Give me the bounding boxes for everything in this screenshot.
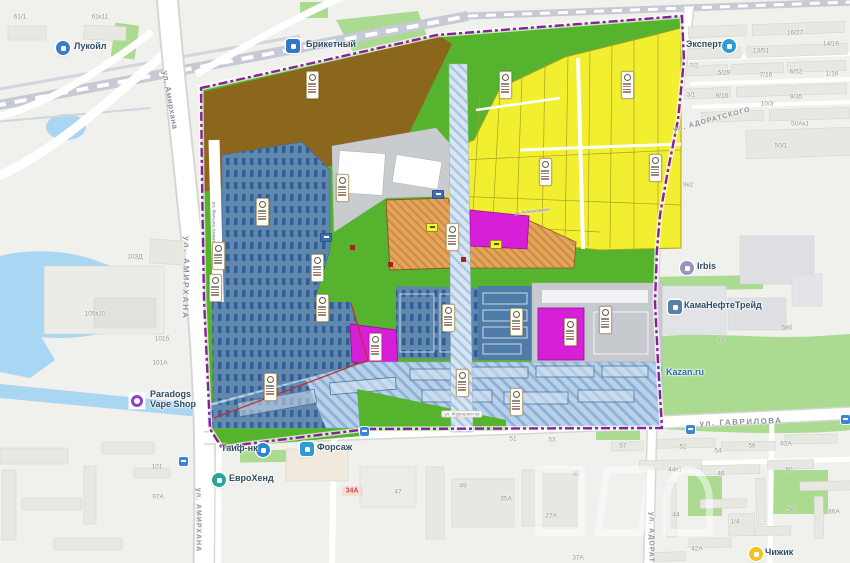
house-number: 57 (619, 443, 626, 450)
zone-info-marker (499, 71, 512, 99)
house-number: 9к2 (683, 182, 693, 189)
vape-shop-icon[interactable] (130, 394, 144, 408)
boundary-point-marker (461, 257, 466, 262)
zone-info-marker (336, 174, 349, 202)
house-number: 10/3 (761, 101, 774, 108)
house-number: 58б (782, 325, 793, 332)
transit-stop-icon[interactable] (686, 425, 695, 434)
poi-label-briketny[interactable]: Брикетный (306, 40, 356, 50)
house-number: 37А (572, 555, 584, 562)
poi-label-kamaneftetreyd[interactable]: КамаНефтеТрейд (684, 301, 762, 311)
zone-info-marker (649, 154, 662, 182)
shop-icon[interactable] (212, 473, 226, 487)
street-label: ул. АМИРХАНА (195, 488, 202, 552)
house-number: 50Ак1 (791, 121, 809, 128)
railway-station-icon[interactable] (286, 39, 300, 53)
poi-label-kazanru[interactable]: Kazan.ru (666, 368, 704, 378)
poi-label-evrohend[interactable]: ЕвроХенд (229, 474, 274, 484)
zone-info-marker (256, 198, 269, 226)
zone-info-marker (316, 294, 329, 322)
poi-label-irbis[interactable]: Irbis (697, 262, 716, 272)
zone-info-marker (442, 304, 455, 332)
poi-label-lukoil[interactable]: Лукойл (74, 42, 106, 52)
zone-info-marker (212, 242, 225, 270)
street-label: ул. Журналистов (441, 411, 482, 418)
zone-info-marker (539, 158, 552, 186)
zone-info-marker (599, 306, 612, 334)
boundary-point-marker (388, 262, 393, 267)
house-number: 9/35 (790, 94, 803, 101)
house-number: 42А (691, 546, 703, 553)
house-number: 101А (152, 360, 167, 367)
boundary-point-marker (350, 245, 355, 250)
poi-label-forsazh[interactable]: Форсаж (317, 443, 352, 453)
zone-code-badge (426, 223, 438, 232)
house-number: 54 (714, 448, 721, 455)
zone-info-marker (621, 71, 634, 99)
zone-info-marker (446, 223, 459, 251)
zone-code-badge (490, 240, 502, 249)
fuel-station-icon[interactable] (256, 443, 270, 457)
house-number: 13/51 (753, 48, 769, 55)
house-number: 76 (717, 338, 724, 345)
zone-code-badge (320, 233, 332, 242)
map-canvas[interactable]: ЛукойлБрикетныйЭкспертIrbisКамаНефтеТрей… (0, 0, 850, 563)
poi-label-paradogs[interactable]: Paradogs Vape Shop (150, 390, 196, 410)
house-number: 101б (155, 336, 170, 343)
house-number: 52 (679, 444, 686, 451)
house-number: 101 (152, 464, 163, 471)
transit-stop-icon[interactable] (179, 457, 188, 466)
transit-stop-icon[interactable] (360, 427, 369, 436)
house-number: 51 (509, 436, 516, 443)
house-number: 61/1 (14, 14, 27, 21)
house-number: 7/2 (689, 63, 698, 70)
fuel-station-icon[interactable] (56, 41, 70, 55)
house-number: 66А (828, 509, 840, 516)
poi-label-chizhik[interactable]: Чижик (765, 548, 793, 558)
house-number: 1/16 (826, 71, 839, 78)
zone-info-marker (510, 308, 523, 336)
house-number: 105к10 (85, 311, 106, 318)
house-number: 3/1 (686, 92, 695, 99)
house-number: 5/29 (718, 70, 731, 77)
house-number: 50/1 (775, 143, 788, 150)
company-icon[interactable] (668, 300, 682, 314)
house-number: 6/52 (790, 69, 803, 76)
house-number: 7/16 (760, 72, 773, 79)
zone-info-marker (264, 373, 277, 401)
transit-stop-icon[interactable] (841, 415, 850, 424)
house-number: 58 (787, 507, 794, 514)
grocery-icon[interactable] (749, 547, 763, 561)
poi-label-expert[interactable]: Эксперт (686, 40, 722, 50)
house-number: 103Д (127, 254, 142, 261)
zone-info-marker (456, 369, 469, 397)
store-icon[interactable] (722, 39, 736, 53)
zone-info-marker (311, 254, 324, 282)
zone-info-marker (306, 71, 319, 99)
house-number: 16/27 (787, 30, 803, 37)
zone-info-marker (209, 274, 222, 302)
house-number: 56 (748, 443, 755, 450)
zone-info-marker (510, 388, 523, 416)
leisure-icon[interactable] (680, 261, 694, 275)
house-number: 61к11 (92, 14, 109, 21)
house-number: 14/16 (823, 41, 839, 48)
house-number: 97А (152, 494, 164, 501)
zone-info-marker (564, 318, 577, 346)
house-number: 47 (394, 489, 401, 496)
street-label: ул. АМИРХАНА (181, 236, 191, 320)
house-number: 60 (785, 467, 792, 474)
watermark (535, 462, 745, 540)
zone-code-badge (432, 190, 444, 199)
house-number: 62А (780, 441, 792, 448)
car-wash-icon[interactable] (300, 442, 314, 456)
house-number: 53 (548, 437, 555, 444)
house-number: 35А (500, 496, 512, 503)
house-number: 9/16 (716, 93, 729, 100)
house-number: 49 (459, 483, 466, 490)
zone-info-marker (369, 333, 382, 361)
poi-label-taif-nk[interactable]: Таиф-нк (221, 444, 258, 454)
house-number-highlighted[interactable]: 34А (343, 487, 362, 496)
